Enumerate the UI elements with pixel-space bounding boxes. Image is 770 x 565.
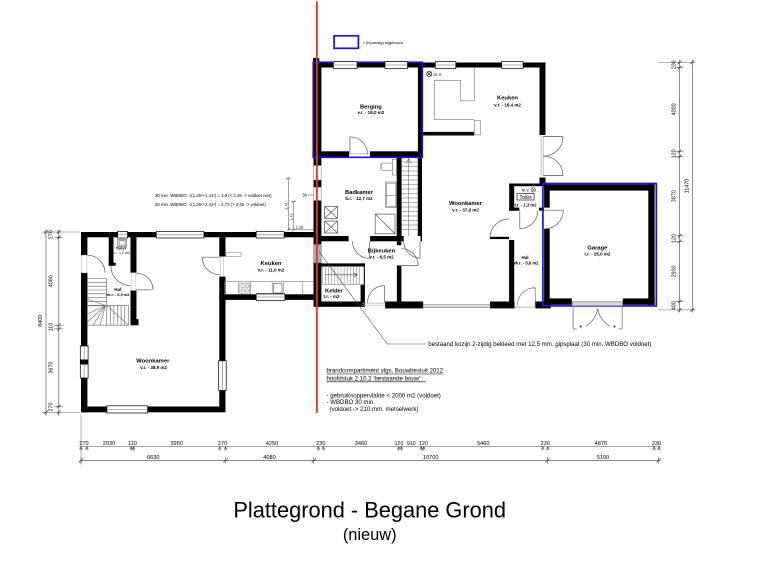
svg-text:v.r. - 37,6 m2: v.r. - 37,6 m2: [452, 207, 479, 212]
svg-text:vk.r. - 5,6 m2: vk.r. - 5,6 m2: [513, 261, 539, 266]
svg-text:(voldoet -> 210 mm. metselwerk: (voldoet -> 210 mm. metselwerk): [330, 406, 419, 413]
svg-text:Keuken: Keuken: [261, 261, 282, 267]
svg-text:5100: 5100: [597, 455, 609, 461]
svg-text:4000: 4000: [671, 103, 677, 115]
svg-text:2,41: 2,41: [284, 202, 288, 209]
svg-text:Plattegrond - Begane Grond: Plattegrond - Begane Grond: [233, 497, 506, 522]
svg-text:5460: 5460: [477, 441, 489, 447]
svg-text:230: 230: [316, 441, 325, 447]
svg-text:120: 120: [671, 234, 677, 243]
svg-text:230: 230: [671, 60, 677, 69]
svg-text:120: 120: [419, 441, 428, 447]
svg-text:270: 270: [49, 403, 55, 412]
svg-text:v.r. - 18,0 m2: v.r. - 18,0 m2: [358, 110, 385, 115]
svg-text:2930: 2930: [671, 265, 677, 277]
svg-text:3870: 3870: [671, 190, 677, 202]
svg-text:(nieuw): (nieuw): [343, 526, 397, 544]
svg-text:b.r. - 12,7 m2: b.r. - 12,7 m2: [345, 196, 373, 201]
svg-text:Badkamer: Badkamer: [345, 190, 374, 196]
svg-text:11470: 11470: [685, 179, 691, 194]
svg-text:30 min. WBDBO: √(1,26²+2,41²): 30 min. WBDBO: √(1,26²+2,41²) = 2,73 (> …: [155, 202, 266, 207]
svg-text:m.v.: m.v.: [434, 72, 443, 77]
svg-text:110: 110: [49, 323, 55, 332]
svg-text:1,26: 1,26: [296, 225, 303, 229]
svg-text:bestaand kozijn 2-zijdig bekle: bestaand kozijn 2-zijdig bekleed met 12,…: [428, 341, 651, 348]
svg-text:2030: 2030: [103, 441, 115, 447]
svg-text:v.r. - 38,9 m2: v.r. - 38,9 m2: [140, 365, 167, 370]
svg-text:Keuken: Keuken: [497, 96, 518, 102]
svg-text:230: 230: [541, 441, 550, 447]
svg-text:270: 270: [79, 441, 88, 447]
svg-text:Toilet: Toilet: [519, 195, 532, 201]
svg-text:t.r. - 1,3 m2: t.r. - 1,3 m2: [515, 202, 538, 207]
svg-text:4870: 4870: [595, 441, 607, 447]
svg-text:120: 120: [395, 441, 404, 447]
svg-text:t.r. - 25,0 m2: t.r. - 25,0 m2: [584, 252, 611, 257]
svg-text:3950: 3950: [170, 441, 182, 447]
svg-text:270: 270: [218, 441, 227, 447]
svg-text:Bijkeuken: Bijkeuken: [368, 248, 396, 254]
svg-text:Toilet: Toilet: [116, 246, 127, 251]
svg-text:m.v.: m.v.: [522, 188, 530, 193]
svg-text:30: 30: [302, 193, 307, 198]
svg-text:8400: 8400: [38, 315, 44, 327]
svg-text:3460: 3460: [355, 441, 367, 447]
svg-text:hoofdstuk 2.10.2 'bestaande bo: hoofdstuk 2.10.2 'bestaande bouw':: [327, 375, 423, 382]
svg-text:120: 120: [671, 149, 677, 158]
svg-text:t.r. - 1,2 m2: t.r. - 1,2 m2: [112, 251, 130, 255]
svg-text:brandcompartiment vlgs. Bouwbe: brandcompartiment vlgs. Bouwbesluit 2012: [327, 368, 444, 375]
svg-text:230: 230: [652, 441, 661, 447]
svg-text:110: 110: [128, 441, 137, 447]
svg-text:1,41: 1,41: [290, 213, 294, 220]
svg-text:4080: 4080: [49, 275, 55, 287]
svg-text:= (inpandig) bijgebouw: = (inpandig) bijgebouw: [363, 40, 403, 45]
svg-text:v.r. - 16,4 m2: v.r. - 16,4 m2: [494, 103, 521, 108]
svg-text:Woonkamer: Woonkamer: [136, 359, 170, 365]
svg-text:3670: 3670: [49, 362, 55, 374]
svg-text:400: 400: [671, 301, 677, 310]
svg-text:Garage: Garage: [587, 245, 608, 251]
svg-text:t.r. - m2: t.r. - m2: [323, 294, 340, 299]
svg-text:30 min. WBDBO: √(1,26²+1,41²): 30 min. WBDBO: √(1,26²+1,41²) = 1,9 (< 2…: [155, 193, 272, 198]
svg-text:v.r. - 6,5 m2: v.r. - 6,5 m2: [369, 255, 394, 260]
svg-text:v.r. - 11,0 m2: v.r. - 11,0 m2: [258, 267, 285, 272]
svg-text:270: 270: [49, 230, 55, 239]
svg-text:4080: 4080: [263, 455, 275, 461]
svg-text:vk.r. - 6,9 m2: vk.r. - 6,9 m2: [106, 292, 130, 297]
svg-text:910: 910: [407, 441, 416, 447]
svg-text:Woonkamer: Woonkamer: [449, 201, 483, 207]
svg-text:Hal: Hal: [521, 255, 528, 260]
svg-text:6630: 6630: [147, 455, 159, 461]
svg-text:10700: 10700: [423, 455, 439, 461]
svg-text:4250: 4250: [266, 441, 278, 447]
